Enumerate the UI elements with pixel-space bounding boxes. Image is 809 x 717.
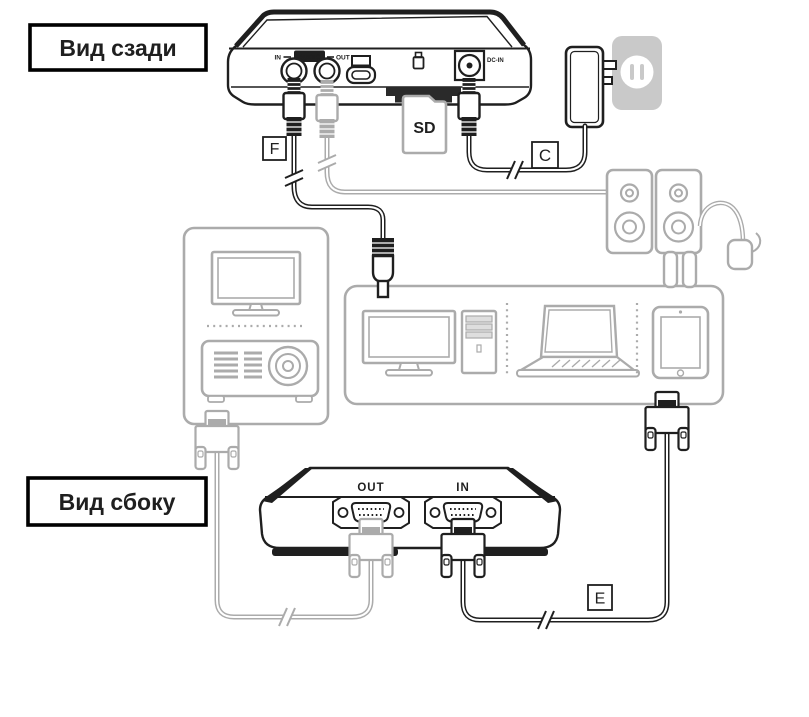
speaker-leg — [683, 252, 696, 287]
cable-tag-c-text: C — [539, 146, 551, 165]
display-options-box — [184, 228, 328, 424]
cable-tag-e: E — [588, 585, 612, 610]
main-device-side: OUT IN — [260, 468, 560, 556]
side-view-text: Вид сбоку — [59, 489, 176, 515]
wall-outlet-icon — [612, 36, 662, 110]
tablet-icon — [653, 307, 708, 378]
source-devices-box — [345, 286, 723, 404]
dc-in-label: DC-IN — [487, 58, 504, 64]
desktop-tower-icon — [462, 311, 496, 373]
speakers-icon — [607, 170, 701, 287]
side-view-label: Вид сбоку — [28, 478, 206, 525]
rear-view-label: Вид сзади — [30, 25, 206, 70]
audio-out-label: OUT — [336, 55, 350, 62]
vga-out-label: OUT — [357, 482, 384, 494]
sd-card-label: SD — [413, 120, 435, 137]
connection-diagram: IN AUDIO OUT DC-IN — [0, 0, 809, 717]
cable-tag-f: F — [263, 137, 286, 160]
cable-tag-f-text: F — [270, 141, 280, 158]
diagram-svg: IN AUDIO OUT DC-IN — [0, 0, 809, 717]
dc-in-port — [455, 51, 484, 80]
vga-in-label: IN — [456, 482, 470, 494]
cable-tag-c: C — [532, 142, 558, 168]
device-body — [228, 12, 531, 105]
speaker-leg — [664, 252, 677, 287]
rear-view-text: Вид сзади — [59, 35, 176, 61]
audio-in-label: IN — [275, 55, 282, 62]
power-cable — [469, 126, 585, 170]
headphones-icon — [700, 203, 760, 269]
power-adapter-icon — [566, 47, 616, 127]
main-device-rear: IN AUDIO OUT DC-IN — [228, 12, 531, 153]
mini-usb-port — [347, 67, 375, 83]
projector-icon — [202, 341, 318, 402]
cable-tag-e-text: E — [595, 591, 606, 608]
sd-card-icon: SD — [403, 96, 446, 153]
audio-in-cable — [294, 132, 383, 242]
